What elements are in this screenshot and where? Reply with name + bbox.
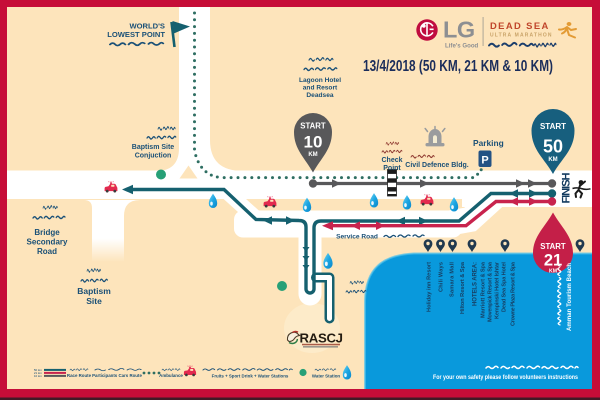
svg-text:Kempinski Hotel Ishtar: Kempinski Hotel Ishtar (495, 261, 501, 319)
svg-text:Parking: Parking (473, 138, 504, 148)
svg-text:and Resort: and Resort (303, 85, 338, 92)
svg-text:Amman Tourism Beach: Amman Tourism Beach (567, 263, 573, 331)
svg-text:Movenpick Resort & Spa: Movenpick Resort & Spa (488, 261, 494, 322)
svg-text:21: 21 (544, 252, 562, 270)
svg-text:KM: KM (548, 157, 557, 163)
svg-text:Service Road: Service Road (336, 234, 378, 241)
svg-text:Holiday inn Resort: Holiday inn Resort (427, 262, 433, 312)
svg-text:START: START (540, 122, 566, 131)
svg-text:FINISH: FINISH (561, 172, 573, 203)
svg-text:Race Route: Race Route (67, 373, 92, 378)
svg-text:RASCJ: RASCJ (300, 331, 343, 346)
svg-text:Fruits + Sport Drink + Water S: Fruits + Sport Drink + Water Stations (212, 374, 289, 379)
svg-text:Chili Ways: Chili Ways (439, 262, 445, 292)
svg-text:Deadsea: Deadsea (306, 92, 333, 99)
svg-text:Site: Site (86, 296, 102, 306)
svg-text:HOTELS AREA:: HOTELS AREA: (473, 262, 479, 306)
svg-text:LG: LG (443, 17, 475, 43)
svg-text:Life's Good: Life's Good (445, 43, 479, 50)
svg-text:Lagoon Hotel: Lagoon Hotel (299, 77, 341, 84)
svg-text:Samara Mall: Samara Mall (450, 262, 456, 297)
svg-text:Dead Sea Spa Hotel: Dead Sea Spa Hotel (502, 262, 508, 312)
svg-text:Civil Defence Bldg.: Civil Defence Bldg. (405, 162, 468, 169)
svg-text:10: 10 (304, 133, 323, 152)
svg-text:Bridge: Bridge (34, 228, 60, 237)
svg-text:10 km: 10 km (34, 374, 43, 378)
svg-text:START: START (300, 122, 326, 131)
svg-text:Marriott Resort & Spa: Marriott Resort & Spa (481, 261, 487, 318)
svg-text:ULTRA MARATHON: ULTRA MARATHON (490, 33, 553, 39)
svg-text:Ambulance: Ambulance (159, 373, 183, 378)
svg-text:KM: KM (549, 269, 557, 275)
svg-text:LOWEST POINT: LOWEST POINT (107, 30, 165, 39)
svg-text:For your own safety please fol: For your own safety please follow volunt… (433, 374, 578, 381)
svg-text:Water Station: Water Station (312, 374, 340, 379)
svg-text:Road: Road (37, 247, 57, 256)
svg-text:Crowne Plaza Resort & Spa: Crowne Plaza Resort & Spa (511, 261, 517, 326)
svg-text:Participants Cars Route: Participants Cars Route (92, 373, 142, 378)
svg-text:Hilton Resort & Spa: Hilton Resort & Spa (460, 261, 466, 314)
svg-text:Conjuction: Conjuction (135, 153, 172, 160)
svg-text:START: START (540, 242, 566, 251)
svg-text:Secondary: Secondary (27, 238, 68, 247)
svg-text:KM: KM (308, 152, 317, 158)
svg-text:Baptism: Baptism (77, 286, 111, 296)
svg-text:P: P (481, 155, 488, 167)
svg-text:Check: Check (381, 157, 402, 164)
svg-text:DEAD SEA: DEAD SEA (490, 20, 550, 31)
svg-text:Point: Point (383, 165, 401, 172)
svg-text:Baptism Site: Baptism Site (132, 144, 175, 151)
svg-text:13/4/2018 (50 KM, 21 KM & 10 K: 13/4/2018 (50 KM, 21 KM & 10 KM) (363, 58, 553, 75)
svg-text:50: 50 (543, 137, 563, 157)
